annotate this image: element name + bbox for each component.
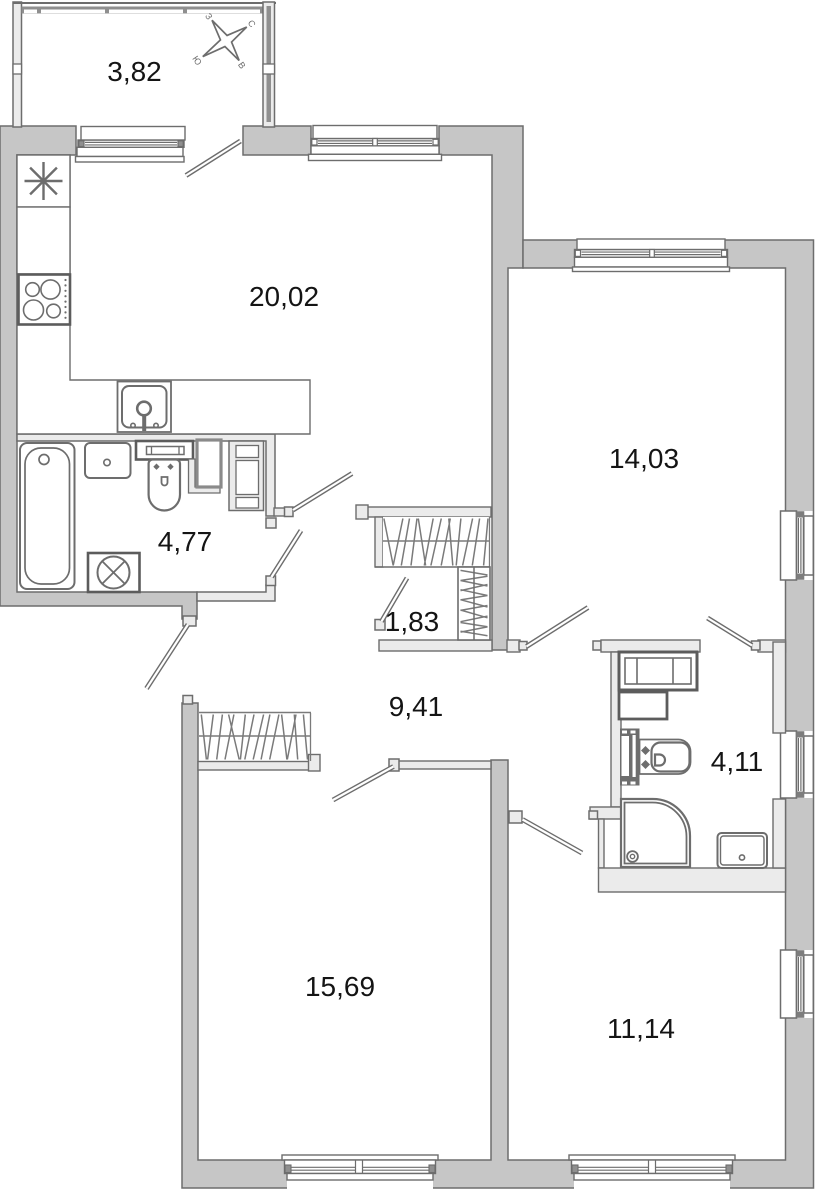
svg-text:15,69: 15,69: [305, 971, 375, 1002]
svg-text:20,02: 20,02: [249, 281, 319, 312]
svg-text:4,11: 4,11: [711, 746, 763, 777]
svg-text:1,83: 1,83: [385, 606, 440, 637]
svg-text:9,41: 9,41: [389, 691, 444, 722]
svg-text:3,82: 3,82: [107, 56, 162, 87]
svg-text:11,14: 11,14: [607, 1013, 675, 1044]
svg-text:14,03: 14,03: [609, 443, 679, 474]
svg-text:4,77: 4,77: [158, 526, 213, 557]
